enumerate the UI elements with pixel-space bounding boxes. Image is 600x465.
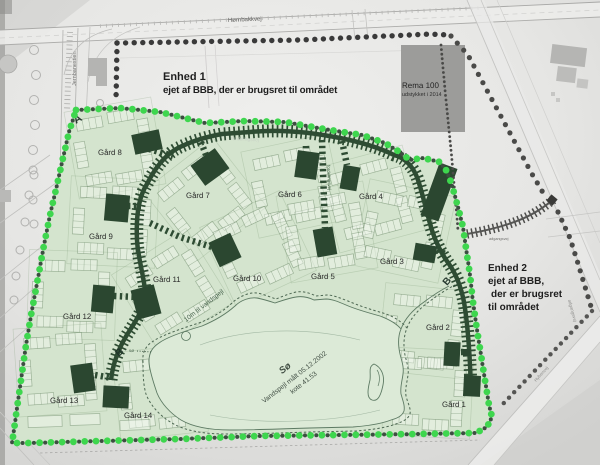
svg-text:Gård 2: Gård 2: [426, 323, 450, 332]
svg-text:Gård 12: Gård 12: [63, 312, 91, 321]
svg-text:Gård 11: Gård 11: [153, 275, 181, 284]
svg-text:Gård 4: Gård 4: [359, 192, 383, 201]
svg-text:Gård 3: Gård 3: [380, 257, 404, 266]
svg-text:Gård 8: Gård 8: [98, 148, 122, 157]
svg-text:Gård 1: Gård 1: [442, 400, 466, 409]
svg-text:Enhed 2: Enhed 2: [488, 263, 527, 274]
svg-text:Gård 5: Gård 5: [311, 272, 335, 281]
svg-text:Gård 9: Gård 9: [89, 232, 113, 241]
svg-text:udstykket i 2014: udstykket i 2014: [402, 92, 442, 98]
svg-text:Hørnbakkvej: Hørnbakkvej: [228, 16, 262, 24]
svg-text:Gård 7: Gård 7: [186, 191, 210, 200]
svg-text:Gård 13: Gård 13: [50, 396, 78, 405]
svg-text:ejet af BBB,: ejet af BBB,: [488, 276, 544, 287]
svg-text:Rema 100: Rema 100: [402, 81, 439, 90]
svg-text:Gård 14: Gård 14: [124, 411, 153, 420]
svg-text:sø: sø: [129, 348, 134, 353]
svg-text:Gård 6: Gård 6: [278, 190, 302, 199]
svg-text:der er brugsret: der er brugsret: [491, 289, 563, 300]
svg-text:til området: til området: [488, 301, 540, 313]
svg-text:Gård 10: Gård 10: [233, 274, 262, 283]
svg-text:adgangsvej: adgangsvej: [489, 237, 509, 241]
svg-text:ejet af BBB, der er brugsret t: ejet af BBB, der er brugsret til området: [163, 84, 338, 96]
svg-text:Jernbanestien: Jernbanestien: [72, 51, 78, 86]
svg-text:Enhed 1: Enhed 1: [163, 71, 206, 83]
